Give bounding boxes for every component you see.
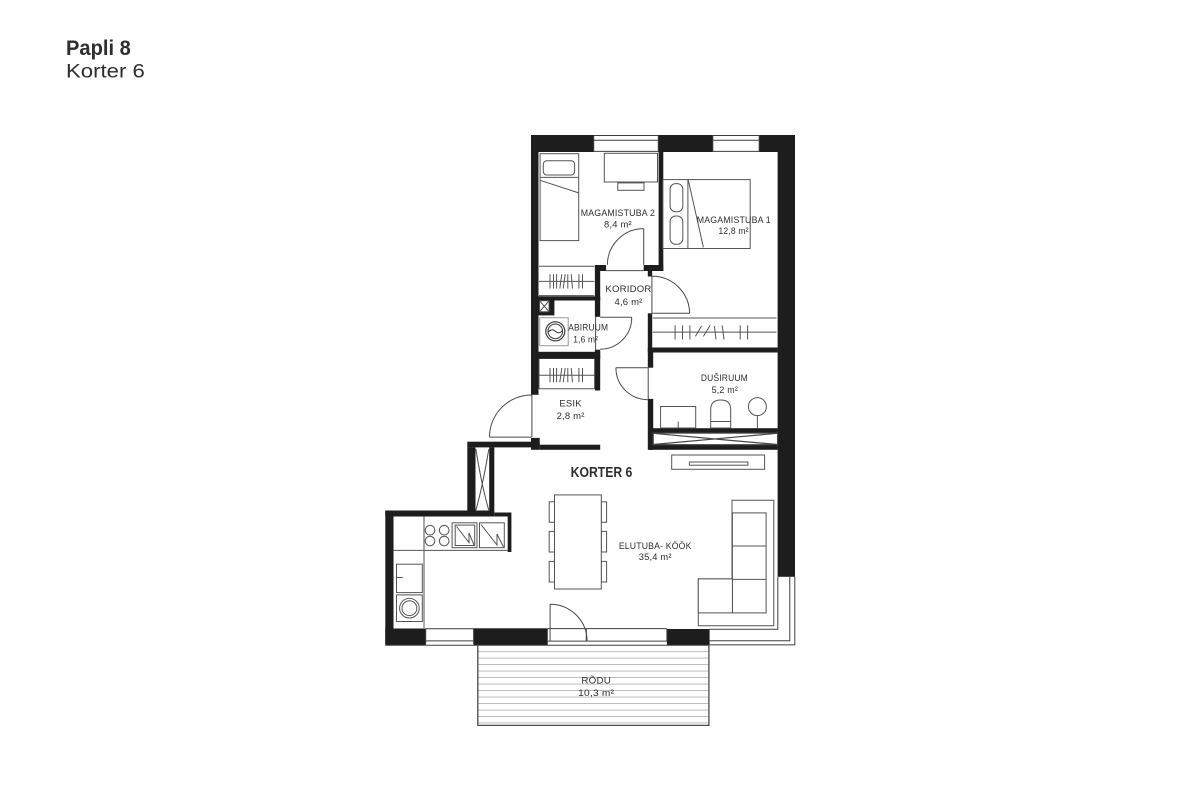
svg-text:DUŠIRUUM: DUŠIRUUM (701, 373, 748, 383)
svg-text:2,8 m²: 2,8 m² (557, 411, 585, 421)
svg-text:5,2 m²: 5,2 m² (712, 385, 738, 395)
svg-text:ESIK: ESIK (559, 398, 582, 408)
svg-text:8,4 m²: 8,4 m² (604, 220, 632, 230)
svg-text:12,8 m²: 12,8 m² (719, 226, 749, 236)
svg-text:4,6 m²: 4,6 m² (615, 297, 643, 307)
svg-text:KORIDOR: KORIDOR (605, 284, 651, 294)
svg-text:RÕDU: RÕDU (581, 676, 611, 686)
svg-text:ABIRUUM: ABIRUUM (568, 322, 608, 332)
svg-text:35,4 m²: 35,4 m² (639, 552, 672, 562)
svg-text:Papli 8: Papli 8 (66, 36, 131, 60)
svg-text:1,6 m²: 1,6 m² (573, 335, 598, 345)
svg-text:Korter 6: Korter 6 (66, 61, 145, 83)
svg-text:ELUTUBA- KÖÖK: ELUTUBA- KÖÖK (619, 541, 692, 551)
svg-text:MAGAMISTUBA 1: MAGAMISTUBA 1 (697, 215, 771, 225)
svg-text:KORTER 6: KORTER 6 (571, 465, 633, 481)
svg-text:10,3 m²: 10,3 m² (578, 688, 614, 698)
svg-text:MAGAMISTUBA 2: MAGAMISTUBA 2 (581, 208, 655, 218)
